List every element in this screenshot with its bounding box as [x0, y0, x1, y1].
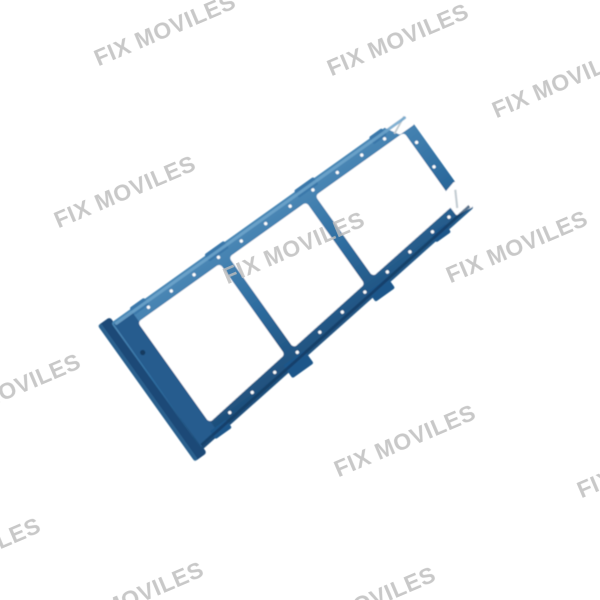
- sim-tray: [98, 109, 499, 462]
- sim-tray-image: [0, 0, 600, 600]
- product-photo: FIX MOVILESFIX MOVILESFIX MOVILESFIX MOV…: [0, 0, 600, 600]
